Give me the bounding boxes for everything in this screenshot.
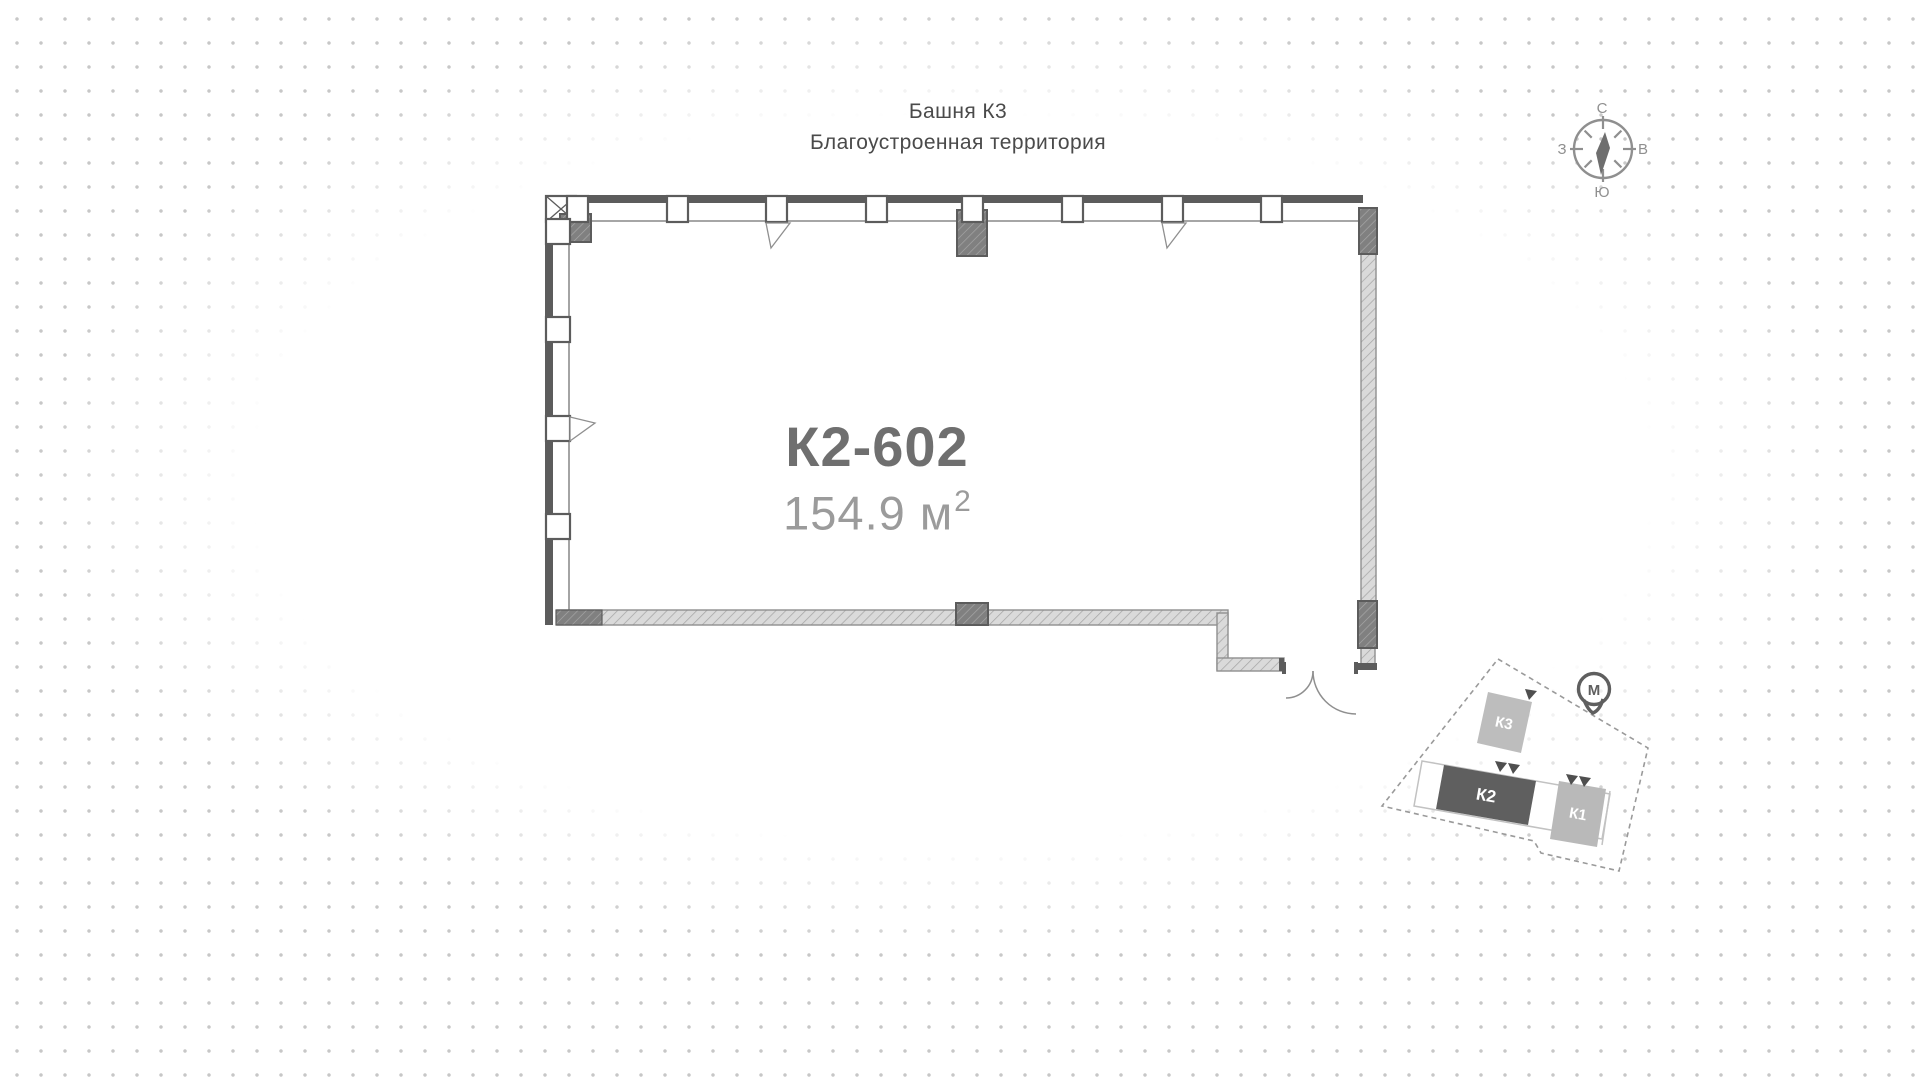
header: Башня К3 Благоустроенная территория [558, 99, 1358, 156]
unit-label: К2-602 154.9 м2 [577, 418, 1177, 540]
door-leaf-arc-right [1313, 671, 1356, 714]
building-k3[interactable]: К3 [1477, 692, 1532, 753]
metro-icon: М [1579, 674, 1610, 714]
compass: С В Ю З [1548, 88, 1660, 210]
building-k2[interactable]: К2 [1436, 765, 1536, 825]
page-title: Башня К3 [558, 99, 1358, 125]
site-plan: К3 К2 К1 М [1372, 648, 1662, 880]
compass-north-label: С [1597, 100, 1608, 117]
vent-window-flags [570, 223, 1186, 441]
compass-south-label: Ю [1594, 184, 1609, 201]
metro-letter: М [1588, 682, 1601, 699]
bottom-wall [556, 610, 1284, 671]
unit-area-value: 154.9 м [783, 487, 953, 540]
column-top-right [1359, 208, 1377, 254]
page: Башня К3 Благоустроенная территория С В … [0, 0, 1920, 1078]
building-k1-label: К1 [1568, 805, 1588, 825]
compass-needle-icon [1596, 132, 1610, 175]
column-bottom-right [1358, 601, 1377, 648]
column-bottom-middle [956, 603, 988, 625]
unit-area: 154.9 м2 [577, 478, 1177, 540]
building-k2-label: К2 [1475, 784, 1498, 806]
entrance-door [1282, 662, 1358, 714]
page-subtitle: Благоустроенная территория [558, 130, 1358, 156]
door-leaf-arc-left [1286, 671, 1313, 698]
left-wall [545, 195, 553, 625]
unit-id: К2-602 [577, 418, 1177, 476]
unit-area-superscript: 2 [954, 485, 972, 518]
compass-west-label: З [1557, 141, 1566, 158]
building-k3-label: К3 [1494, 713, 1515, 733]
compass-east-label: В [1638, 141, 1648, 158]
